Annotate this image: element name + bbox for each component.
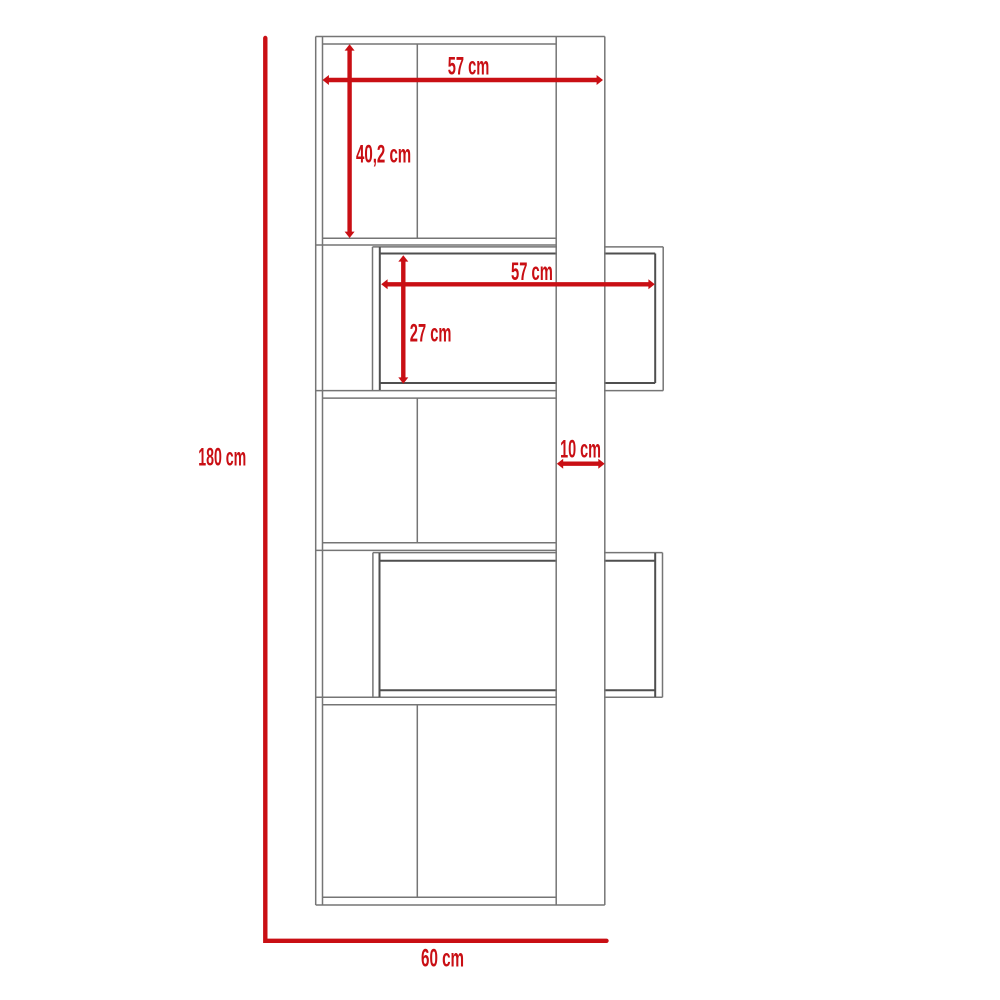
svg-text:57 cm: 57 cm [511,258,553,286]
svg-text:27 cm: 27 cm [410,319,452,347]
svg-text:10 cm: 10 cm [560,435,601,463]
svg-text:60 cm: 60 cm [421,945,464,973]
svg-text:40,2 cm: 40,2 cm [356,141,411,169]
svg-text:57 cm: 57 cm [448,52,490,80]
svg-text:180 cm: 180 cm [198,443,246,471]
